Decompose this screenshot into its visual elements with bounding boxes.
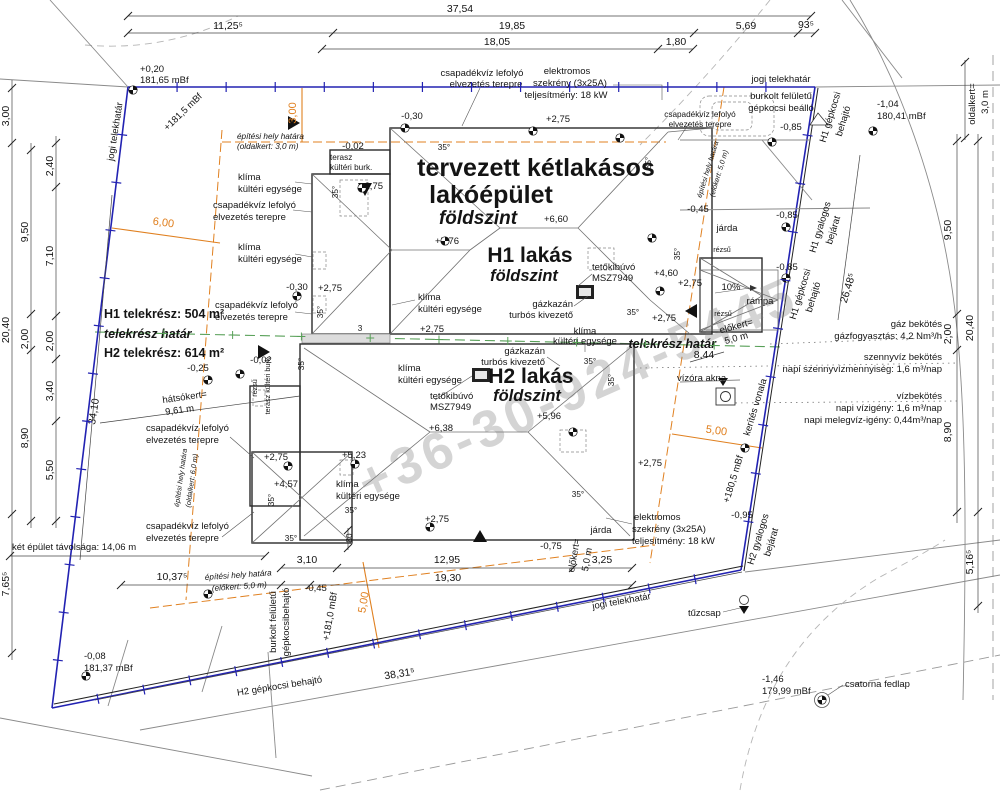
water-meter-label: vízóra akna (677, 373, 727, 384)
rain-top-2: elvezetés terepre (450, 79, 523, 90)
dimension-texts-top: 37,54 11,25⁵ 19,85 5,69 93⁵ 18,05 1,80 (213, 3, 814, 48)
klima-e1: klíma (398, 363, 421, 374)
h1-terasz-1: terasz (330, 153, 352, 162)
h1-unit-floor: földszint (490, 267, 559, 285)
limit-label-bottom-b: (előkert: 5,0 m) (212, 580, 268, 593)
dim-19-30: 19,30 (435, 572, 461, 584)
lv-m045-b: -0,45 (305, 583, 327, 594)
lv-660: +6,60 (544, 214, 568, 225)
h1-roofhatch-1: tetőkibúvó (592, 262, 635, 273)
lv-457: +4,57 (274, 479, 298, 490)
h2-roofhatch-1: tetőkibúvó (430, 391, 473, 402)
h2-boiler-2: turbós kivezető (481, 357, 545, 368)
dim-orange-6-00: 6,00 (152, 216, 175, 231)
h1-roofhatch-2: MSZ7949 (592, 273, 633, 284)
h2-car-entry: H2 gépkocsi behajtó (236, 674, 323, 698)
title-line3: földszint (439, 208, 518, 229)
h1-unit-name: H1 lakás (487, 244, 572, 267)
dim-2-40: 2,40 (44, 156, 56, 177)
s35-1: 35° (438, 143, 450, 152)
sewer-label: szennyvíz bekötés (864, 352, 942, 363)
bench-br-datum: 179,99 mBf (762, 686, 811, 697)
rain-l4-1: csapadékvíz lefolyó (146, 521, 229, 532)
lv-275-b: +2,75 (318, 283, 342, 294)
limit-label-top-b: (oldalkert: 3,0 m) (237, 142, 299, 151)
dim-19-85: 19,85 (499, 20, 525, 32)
klima-f2: kültéri egysége (336, 491, 400, 502)
sewer-demand: napi szennyvízmennyiség: 1,6 m³/nap (783, 364, 942, 375)
hotwater-demand: napi melegvíz-igény: 0,44m³/nap (804, 415, 942, 426)
s35-3: 35° (316, 306, 325, 318)
lv-275-g: +2,75 (264, 452, 288, 463)
s35-12: 35° (285, 534, 297, 543)
rain-top-1: csapadékvíz lefolyó (441, 68, 524, 79)
dim-3-40: 3,40 (44, 381, 56, 402)
dim-7-65: 7,65⁵ (0, 572, 12, 597)
dim-80: 80 (345, 533, 354, 543)
h2-plot-area: H2 telekrész: 614 m² (104, 346, 224, 360)
lv-596: +5,96 (537, 411, 561, 422)
paved-driveway-2: gépkocsibehajtó (281, 588, 292, 657)
dim-8-90-left: 8,90 (19, 428, 31, 449)
h2-unit-floor: földszint (493, 387, 562, 405)
rain-tr-2: elvezetés terepre (669, 120, 732, 129)
lv-275-c: +2,75 (546, 114, 570, 125)
lv-523: +5,23 (342, 450, 366, 461)
lv-m085-a: -0,85 (780, 122, 802, 133)
h2-unit-name: H2 lakás (488, 365, 573, 388)
rain-l1-1: csapadékvíz lefolyó (213, 200, 296, 211)
side-yard-value: 3,0 m (980, 90, 991, 114)
dim-orange-5-00-bottom: 5,00 (356, 591, 372, 614)
s35-7: 35° (297, 358, 306, 370)
dim-1-80: 1,80 (666, 36, 687, 48)
plot-division-label-left: telekrész határ (104, 327, 193, 341)
h2-boiler-1: gázkazán (504, 346, 545, 357)
rain-l2-1: csapadékvíz lefolyó (215, 300, 298, 311)
slope-10: 10% (721, 282, 741, 293)
lv-638: +6,38 (429, 423, 453, 434)
h1-boiler-2: turbós kivezető (509, 310, 573, 321)
lv-m085-c: -0,85 (776, 262, 798, 273)
elek-top-1: elektromos (544, 66, 591, 77)
dim-18-05: 18,05 (484, 36, 510, 48)
contour-181-0: +181,0 mBf (321, 591, 340, 641)
rear-yard-value: 9,61 m (165, 403, 195, 418)
klima-d2: kültéri egysége (553, 336, 617, 347)
s35-2: 35° (331, 186, 340, 198)
s35-6: 35° (627, 308, 639, 317)
utility-texts: gáz bekötés gázfogyasztás: 4,2 Nm³/h sze… (677, 319, 942, 690)
s35-9: 35° (607, 374, 616, 386)
elek-bot-3: teljesítmény: 18 kW (632, 536, 715, 547)
site-plan-drawing: +36-30-924-5445 37,54 11,25⁵ 19,85 5,69 … (0, 0, 1000, 793)
lv-460: +4,60 (654, 268, 678, 279)
lv-m030-b: -0,30 (286, 282, 308, 293)
dim-3-25: 3,25 (592, 554, 613, 566)
s35-8: 35° (584, 357, 596, 366)
rain-l3-2: elvezetés terepre (146, 435, 219, 446)
lv-275-i: +2,75 (638, 458, 662, 469)
rain-tr-1: csapadékvíz lefolyó (664, 110, 736, 119)
dimension-texts-left: 3,00 20,40 7,65⁵ 9,50 2,00 8,90 2,40 7,1… (0, 106, 102, 597)
dim-11-25: 11,25⁵ (213, 20, 243, 32)
klima-f1: klíma (336, 479, 359, 490)
dim-9-50-right: 9,50 (942, 220, 954, 241)
klima-b2: kültéri egysége (238, 254, 302, 265)
dim-37-54: 37,54 (447, 3, 473, 15)
gas-label: gáz bekötés (891, 319, 942, 330)
dim-5-50: 5,50 (44, 460, 56, 481)
klima-a1: klíma (238, 172, 261, 183)
klima-b1: klíma (238, 242, 261, 253)
h1-plot-area: H1 telekrész: 504 m² (104, 307, 224, 321)
dim-3: 3 (358, 324, 363, 333)
gas-demand: gázfogyasztás: 4,2 Nm³/h (834, 331, 942, 342)
limit-label-top: építési hely határa (237, 132, 304, 141)
water-label: vízbekötés (897, 391, 943, 402)
dim-26-48: 26,48⁵ (838, 272, 858, 305)
dim-8-90-right: 8,90 (942, 422, 954, 443)
jarda-h1: járda (715, 223, 738, 234)
bench-tr-datum: 180,41 mBf (877, 111, 926, 122)
dim-3-10: 3,10 (297, 554, 318, 566)
lv-275-f: +2,75 (678, 278, 702, 289)
h1-boiler-1: gázkazán (532, 299, 573, 310)
contour-181-5: +181,5 mBf (162, 91, 205, 133)
paved-driveway-1: burkolt felületű (268, 591, 279, 653)
bench-bl-value: -0,08 (84, 651, 106, 662)
legal-boundary-top: jogi telekhatár (750, 74, 810, 85)
lv-m045-a: -0,45 (687, 204, 709, 215)
jarda-h2: járda (589, 525, 612, 536)
rampa: rámpa (747, 296, 775, 307)
elek-top-3: teljesítmény: 18 kW (525, 90, 608, 101)
paved-parking-1: burkolt felületű (750, 91, 812, 102)
s35-13: 35° (345, 506, 357, 515)
lv-m002-b: -0,02 (250, 355, 272, 366)
water-demand: napi vízigény: 1,6 m³/nap (836, 403, 942, 414)
klima-e2: kültéri egysége (398, 375, 462, 386)
dim-7-10: 7,10 (44, 246, 56, 267)
bench-br-value: -1,46 (762, 674, 784, 685)
rain-l2-2: elvezetés terepre (215, 312, 288, 323)
h2-rezsu: rézsű (250, 379, 259, 397)
lv-m095: -0,95 (731, 510, 753, 521)
rain-l4-2: elvezetés terepre (146, 533, 219, 544)
site-plan: +36-30-924-5445 37,54 11,25⁵ 19,85 5,69 … (0, 0, 1000, 793)
lv-m025: -0,25 (187, 363, 209, 374)
bench-tl-datum: 181,65 mBf (140, 75, 189, 86)
s35-5: 35° (673, 248, 682, 260)
dim-2-00-left-a: 2,00 (19, 329, 31, 350)
dim-5-69: 5,69 (736, 20, 757, 32)
bench-tl-value: +0,20 (140, 64, 164, 75)
lv-m085-b: -0,85 (776, 210, 798, 221)
front-yard-bottom-value: 5,0 m (580, 547, 595, 572)
dim-93-5: 93⁵ (798, 19, 814, 31)
side-yard-label: oldalkert= (967, 83, 978, 125)
manhole-label: csatorna fedlap (845, 679, 910, 690)
dim-2-00-left-b: 2,00 (44, 331, 56, 352)
hydrant-label: tűzcsap (688, 608, 721, 619)
rezsu-1: rézsű (713, 245, 731, 254)
rain-l3-1: csapadékvíz lefolyó (146, 423, 229, 434)
dim-2-00-right: 2,00 (942, 324, 954, 345)
dim-5-16: 5,16⁵ (964, 550, 976, 575)
klima-a2: kültéri egysége (238, 184, 302, 195)
bench-bl-datum: 181,37 mBf (84, 663, 133, 674)
elek-bot-1: elektromos (634, 512, 681, 523)
s35-4: 35° (644, 157, 653, 169)
lv-275-e: +2,75 (652, 313, 676, 324)
building-distance-label: két épület távolsága: 14,06 m (12, 542, 136, 553)
rezsu-2: rézsű (714, 309, 732, 318)
bench-tr-value: -1,04 (877, 99, 899, 110)
title-line1: tervezett kétlakásos (417, 154, 655, 182)
dim-20-40-right: 20,40 (964, 315, 976, 341)
lv-275-d: +2,75 (420, 324, 444, 335)
h2-roofhatch-2: MSZ7949 (430, 402, 471, 413)
contour-180-5: +180,5 mBf (721, 454, 746, 504)
lv-m002-a: -0,02 (342, 141, 364, 152)
lv-m075: -0,75 (540, 541, 562, 552)
rain-l1-2: elvezetés terepre (213, 212, 286, 223)
title-line2: lakóépület (429, 181, 553, 209)
klima-c2: kültéri egysége (418, 304, 482, 315)
dim-38-31: 38,31⁵ (383, 666, 415, 683)
paved-parking-2: gépkocsi beálló (748, 103, 814, 114)
dim-orange-5-00-right: 5,00 (705, 424, 728, 439)
s35-11: 35° (267, 494, 276, 506)
lv-m030-a: -0,30 (401, 111, 423, 122)
dim-orange-3-00: 3,00 (287, 102, 299, 123)
h1-terasz-2: kültéri burk. (330, 163, 372, 172)
dim-9-50-left: 9,50 (19, 222, 31, 243)
dim-3-00: 3,00 (0, 106, 12, 127)
s35-10: 35° (572, 490, 584, 499)
dim-12-95: 12,95 (434, 554, 460, 566)
dim-20-40-left: 20,40 (0, 317, 12, 343)
dim-10-37: 10,37⁵ (157, 571, 188, 583)
klima-c1: klíma (418, 292, 441, 303)
elek-bot-2: szekrény (3x25A) (632, 524, 706, 535)
